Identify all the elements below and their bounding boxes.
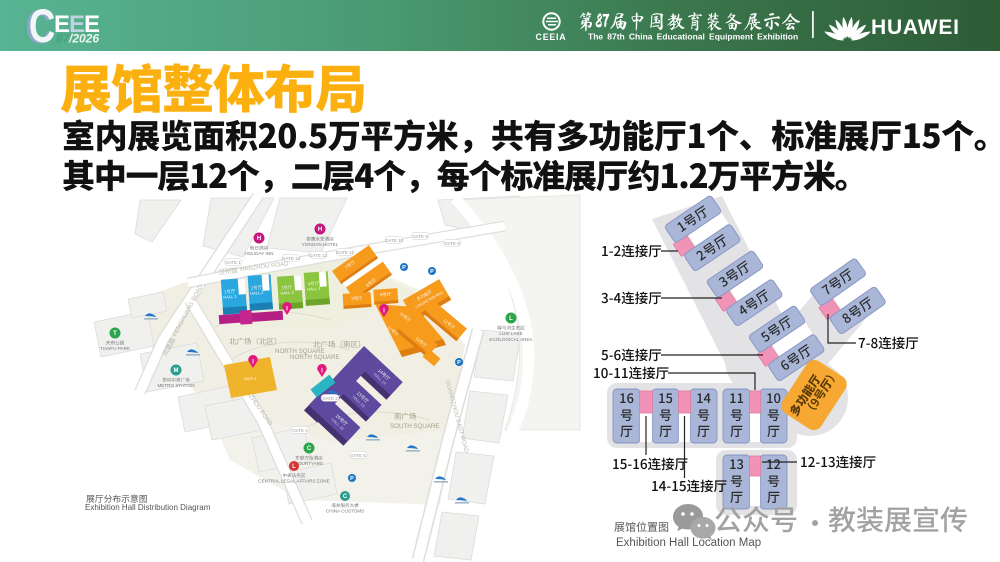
svg-text:HALL 4: HALL 4: [307, 286, 321, 292]
svg-text:HALL 3: HALL 3: [280, 290, 294, 296]
svg-text:GATE 3: GATE 3: [322, 396, 338, 401]
svg-text:H: H: [318, 227, 322, 233]
svg-text:COURTYARD: COURTYARD: [295, 461, 324, 466]
svg-text:HALL 2: HALL 2: [250, 290, 264, 296]
svg-text:P: P: [350, 476, 354, 482]
svg-text:M: M: [174, 368, 179, 374]
svg-text:HALL 1: HALL 1: [223, 294, 237, 300]
svg-text:||: ||: [383, 308, 385, 313]
svg-text:GATE 5: GATE 5: [350, 453, 366, 458]
svg-text:GATE 10: GATE 10: [385, 238, 403, 243]
svg-text:CHINA CUSTOMS: CHINA CUSTOMS: [326, 509, 364, 514]
svg-text:The 87th China Educational Equ: The 87th China Educational Equipment Exh…: [588, 32, 798, 42]
svg-text:TIANFU PARK: TIANFU PARK: [100, 346, 131, 351]
svg-text:CEEIA: CEEIA: [536, 32, 567, 42]
svg-text:LUXI LAKE: LUXI LAKE: [499, 331, 522, 336]
svg-text:YONGAN HOTEL: YONGAN HOTEL: [302, 242, 339, 247]
svg-text:GATE 2: GATE 2: [244, 377, 256, 381]
svg-text:Exhibition Hall Location Map: Exhibition Hall Location Map: [616, 537, 761, 549]
svg-text:||: ||: [321, 368, 323, 373]
svg-text:L: L: [292, 464, 296, 470]
svg-text:P: P: [457, 360, 461, 366]
svg-text:ECOLOGICAL AREA: ECOLOGICAL AREA: [489, 337, 533, 342]
svg-text:C: C: [29, 0, 55, 52]
svg-text:GATE 1: GATE 1: [225, 260, 241, 265]
svg-text:P: P: [402, 265, 406, 271]
svg-text:HOLIDAY INN: HOLIDAY INN: [245, 251, 274, 256]
svg-text:GATE 4: GATE 4: [292, 428, 308, 433]
svg-text:C: C: [307, 446, 312, 452]
svg-text:HUAWEI: HUAWEI: [871, 16, 960, 39]
svg-text:||: ||: [286, 306, 288, 311]
svg-text:GATE 8: GATE 8: [444, 241, 460, 246]
svg-text:T: T: [113, 331, 117, 337]
svg-text:GATE 13: GATE 13: [282, 256, 300, 261]
svg-text:GATE 9: GATE 9: [412, 234, 428, 239]
svg-text:NORTH SQUARE: NORTH SQUARE: [290, 354, 340, 361]
svg-text:METRO STATION: METRO STATION: [157, 383, 194, 388]
svg-text:H: H: [257, 236, 261, 242]
svg-text:SOUTH SQUARE: SOUTH SQUARE: [390, 423, 440, 430]
svg-text:GATE 11: GATE 11: [336, 250, 354, 255]
svg-text:/2026: /2026: [68, 32, 99, 46]
svg-text:||: ||: [252, 359, 254, 364]
svg-text:P: P: [430, 269, 434, 275]
svg-text:C: C: [343, 494, 348, 500]
svg-text:L: L: [509, 316, 513, 322]
svg-text:CENTRAL LEGAL AFFAIRS ZONE: CENTRAL LEGAL AFFAIRS ZONE: [258, 479, 329, 484]
svg-text:Exhibition Hall Distribution D: Exhibition Hall Distribution Diagram: [85, 503, 211, 512]
svg-text:GATE 12: GATE 12: [309, 253, 327, 258]
